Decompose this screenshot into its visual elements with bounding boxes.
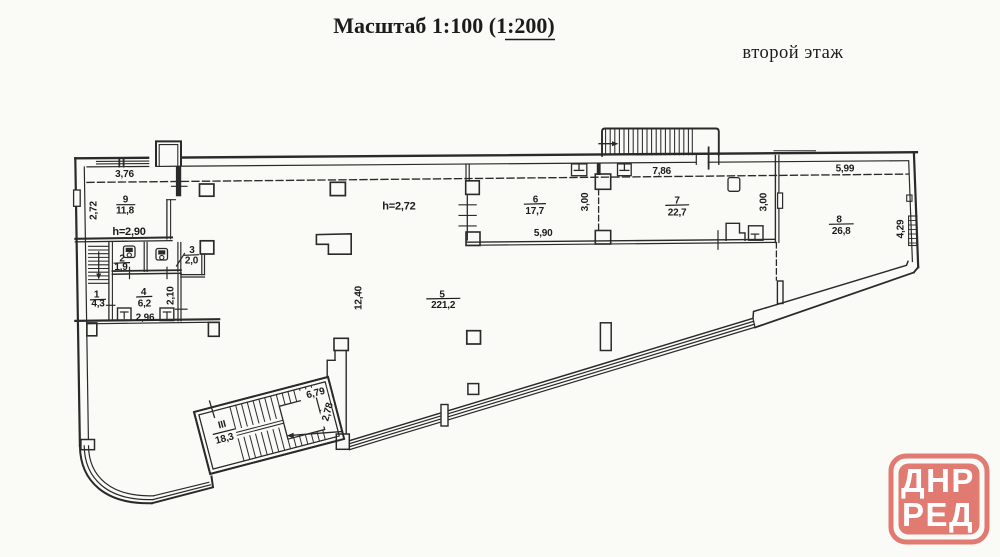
svg-text:5,90: 5,90 bbox=[534, 228, 553, 239]
svg-text:РЕД: РЕД bbox=[902, 496, 974, 533]
svg-text:7,86: 7,86 bbox=[652, 166, 671, 177]
svg-text:h=2,72: h=2,72 bbox=[382, 201, 415, 213]
svg-text:2,72: 2,72 bbox=[89, 201, 100, 220]
svg-text:3,00: 3,00 bbox=[759, 192, 770, 211]
svg-text:2,0: 2,0 bbox=[185, 256, 199, 267]
svg-text:4,29: 4,29 bbox=[896, 219, 907, 238]
svg-text:3,76: 3,76 bbox=[115, 169, 134, 180]
svg-text:9: 9 bbox=[123, 195, 129, 206]
svg-text:Масштаб 1:100 (1:200): Масштаб 1:100 (1:200) bbox=[333, 13, 554, 38]
svg-text:22,7: 22,7 bbox=[668, 208, 687, 219]
svg-text:h=2,90: h=2,90 bbox=[112, 226, 145, 238]
svg-text:5,99: 5,99 bbox=[836, 164, 855, 175]
svg-text:1,9: 1,9 bbox=[114, 262, 128, 273]
svg-text:ДНР: ДНР bbox=[901, 462, 975, 499]
svg-text:11,8: 11,8 bbox=[116, 206, 135, 217]
svg-text:2,96: 2,96 bbox=[136, 312, 155, 323]
svg-text:26,8: 26,8 bbox=[832, 226, 851, 237]
svg-text:второй этаж: второй этаж bbox=[742, 43, 843, 63]
svg-text:17,7: 17,7 bbox=[525, 206, 544, 217]
svg-text:6,2: 6,2 bbox=[138, 299, 152, 310]
svg-text:3,00: 3,00 bbox=[580, 192, 591, 211]
svg-text:4,3: 4,3 bbox=[91, 299, 105, 310]
svg-text:2,10: 2,10 bbox=[166, 286, 177, 305]
svg-text:221,2: 221,2 bbox=[431, 300, 456, 311]
svg-text:12,40: 12,40 bbox=[354, 285, 365, 310]
